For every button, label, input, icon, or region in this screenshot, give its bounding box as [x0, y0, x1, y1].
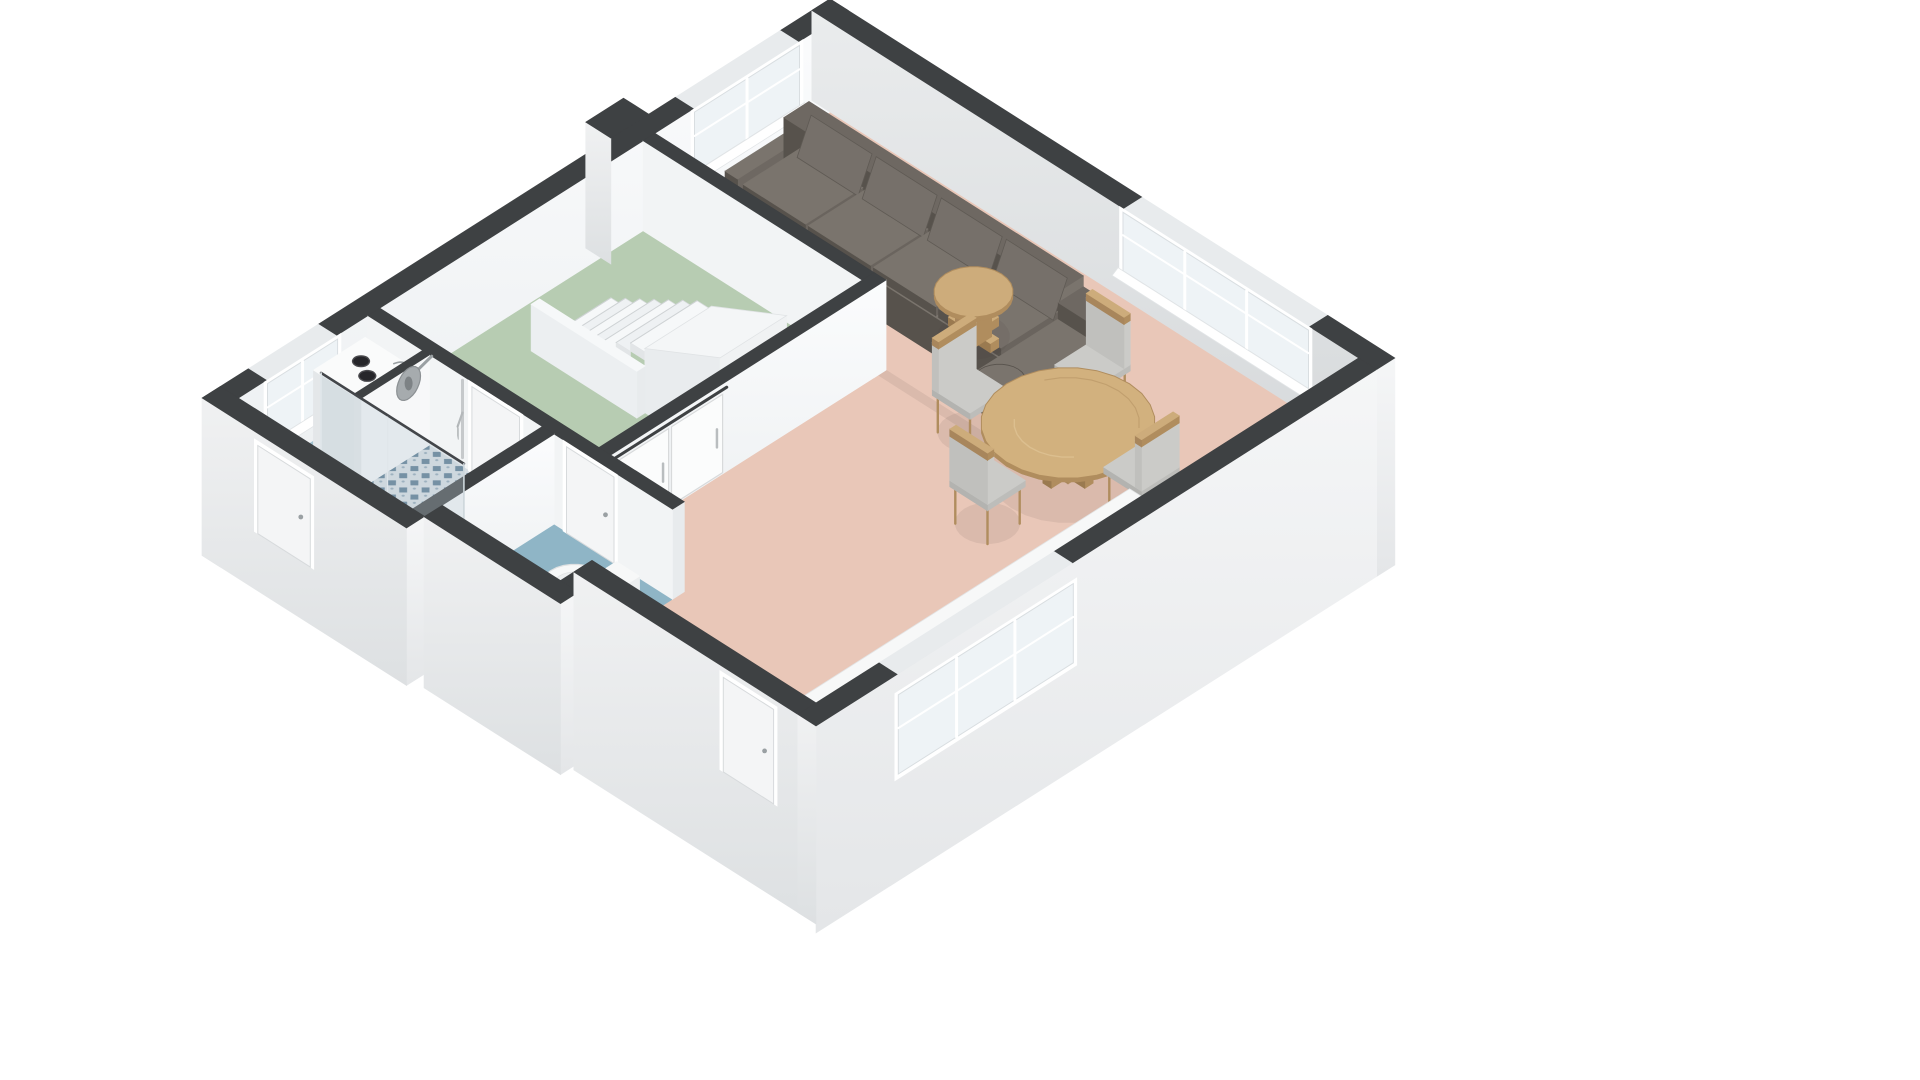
floorplan-page: 3D Floor Plan — Ground Floor	[0, 0, 1920, 1080]
floorplan-3d-render	[0, 0, 1920, 1080]
